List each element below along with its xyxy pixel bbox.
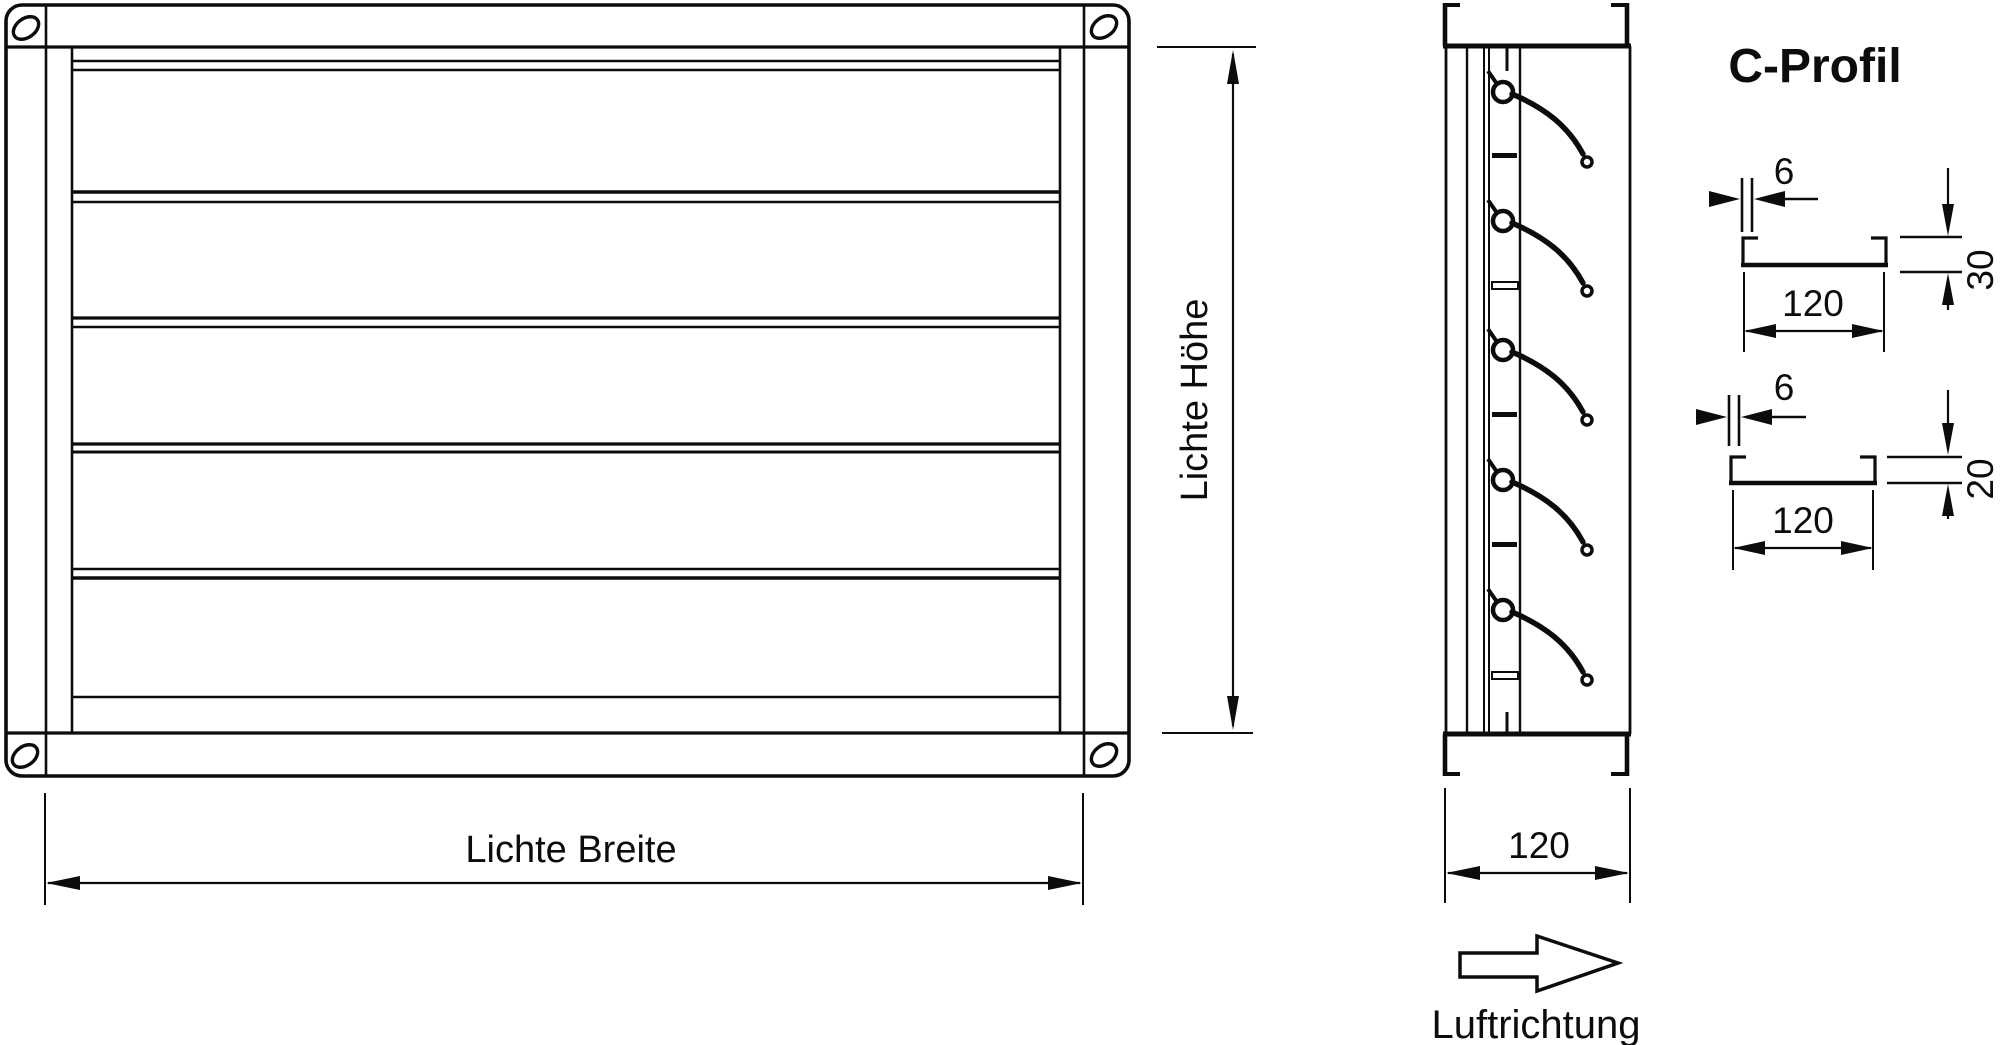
blade-tip-icon bbox=[1582, 415, 1592, 425]
c-channel-shape bbox=[1743, 238, 1886, 264]
arrowhead-down-icon bbox=[1942, 204, 1954, 236]
blade-pivot-icon bbox=[1493, 600, 1513, 620]
slot-icon bbox=[1492, 153, 1517, 158]
slot-icon bbox=[1492, 412, 1517, 417]
blade-profile bbox=[1512, 94, 1583, 154]
arrowhead-left-icon bbox=[1754, 191, 1785, 207]
mounting-hole-icon bbox=[8, 740, 42, 772]
front-view bbox=[6, 5, 1129, 776]
airflow-arrow-icon bbox=[1460, 936, 1618, 991]
profile30-width-value: 120 bbox=[1782, 283, 1844, 324]
slot-icon bbox=[1492, 282, 1518, 289]
blade-profile bbox=[1512, 223, 1583, 283]
arrowhead-down-icon bbox=[1942, 423, 1954, 455]
mounting-hole-icon bbox=[1087, 739, 1121, 771]
louver-blades bbox=[72, 61, 1060, 697]
blade-tip-icon bbox=[1582, 157, 1592, 167]
arrowhead-left-icon bbox=[46, 876, 80, 890]
technical-drawing-page: Lichte Höhe Lichte Breite bbox=[0, 0, 2000, 1045]
profile20-thickness-value: 6 bbox=[1774, 367, 1795, 408]
arrowhead-left-icon bbox=[1741, 409, 1772, 425]
duct-walls bbox=[1446, 46, 1630, 734]
profile30-height-value: 30 bbox=[1960, 249, 2000, 290]
section-blade bbox=[1488, 329, 1592, 425]
bottom-frame-channel bbox=[1443, 734, 1631, 776]
profile-title: C-Profil bbox=[1728, 40, 1901, 93]
blade-pivot-icon bbox=[1493, 211, 1513, 231]
section-blade bbox=[1488, 589, 1592, 685]
corner-mounting-holes bbox=[8, 11, 1121, 772]
side-view bbox=[1443, 3, 1631, 776]
arrowhead-right-icon bbox=[1696, 409, 1727, 425]
arrowhead-right-icon bbox=[1852, 324, 1884, 338]
arrowhead-up-icon bbox=[1227, 50, 1239, 84]
top-frame-channel bbox=[1443, 3, 1631, 46]
arrowhead-right-icon bbox=[1709, 191, 1740, 207]
blade-profile bbox=[1512, 612, 1583, 672]
blade-profile bbox=[1512, 352, 1583, 412]
profile20-width-value: 120 bbox=[1772, 500, 1834, 541]
c-channel-shape bbox=[1731, 457, 1875, 481]
mounting-hole-icon bbox=[1087, 11, 1121, 43]
arrowhead-right-icon bbox=[1048, 876, 1082, 890]
arrowhead-right-icon bbox=[1841, 541, 1873, 555]
arrowhead-left-icon bbox=[1446, 866, 1480, 880]
section-blade bbox=[1488, 459, 1592, 555]
arrowhead-left-icon bbox=[1744, 324, 1776, 338]
profile20-height-value: 20 bbox=[1960, 458, 2000, 499]
depth-dimension-value: 120 bbox=[1508, 825, 1570, 866]
profile30-thickness-value: 6 bbox=[1774, 151, 1795, 192]
arrowhead-left-icon bbox=[1733, 541, 1765, 555]
height-dimension-label: Lichte Höhe bbox=[1174, 299, 1216, 502]
blade-pivot-icon bbox=[1493, 470, 1513, 490]
louver-grille-drawing: Lichte Höhe Lichte Breite bbox=[0, 0, 2000, 1045]
arrowhead-right-icon bbox=[1595, 866, 1629, 880]
section-blade bbox=[1488, 71, 1592, 167]
slot-icon bbox=[1492, 672, 1518, 679]
airflow-label: Luftrichtung bbox=[1431, 1003, 1640, 1045]
frame-outline bbox=[6, 5, 1129, 776]
blade-pivot-icon bbox=[1493, 340, 1513, 360]
arrowhead-down-icon bbox=[1227, 696, 1239, 730]
profile-detail-30 bbox=[1709, 168, 1962, 352]
slot-icon bbox=[1492, 542, 1517, 547]
blade-tip-icon bbox=[1582, 675, 1592, 685]
mounting-hole-icon bbox=[9, 12, 43, 44]
blade-tip-icon bbox=[1582, 545, 1592, 555]
profile-detail-20 bbox=[1696, 390, 1962, 570]
blade-tip-icon bbox=[1582, 286, 1592, 296]
blade-profile bbox=[1512, 482, 1583, 542]
width-dimension-label: Lichte Breite bbox=[465, 829, 676, 871]
blade-pivot-icon bbox=[1493, 82, 1513, 102]
